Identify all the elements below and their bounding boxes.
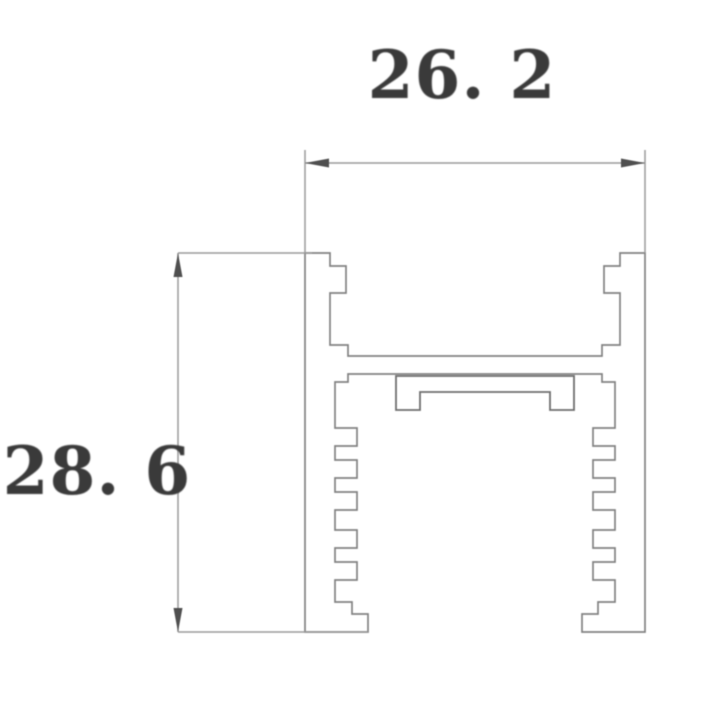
- technical-drawing-canvas: 26. 2 28. 6: [0, 0, 720, 703]
- profile-outline-path: [305, 253, 645, 632]
- width-arrow-right: [621, 159, 645, 168]
- height-dimension-label: 28. 6: [0, 438, 207, 504]
- height-arrow-top: [174, 253, 183, 277]
- width-arrow-left: [305, 159, 329, 168]
- width-dimension-label: 26. 2: [352, 42, 572, 108]
- height-arrow-bottom: [174, 608, 183, 632]
- insert-plate-path: [396, 376, 574, 410]
